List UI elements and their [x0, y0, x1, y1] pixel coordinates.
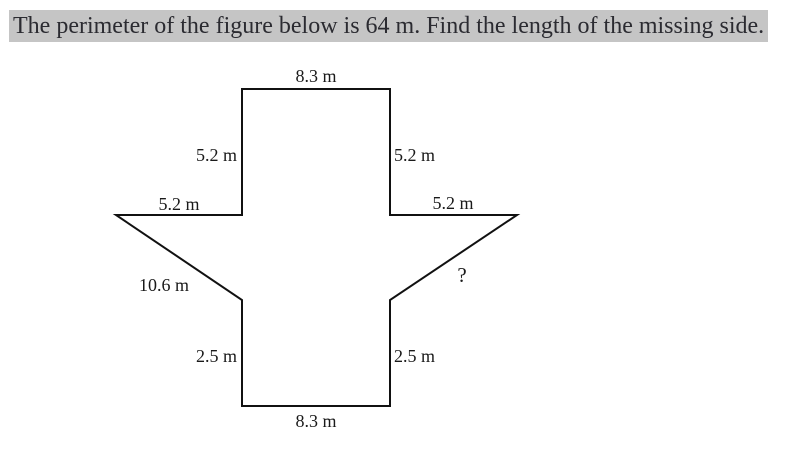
side-label-bottom: 8.3 m [295, 411, 336, 431]
side-label-top: 8.3 m [295, 66, 336, 86]
side-label-lower-right: 2.5 m [394, 346, 435, 366]
figure-outline [116, 89, 517, 406]
side-label-missing: ? [457, 263, 466, 287]
side-label-lower-left: 2.5 m [196, 346, 237, 366]
side-label-upper-right: 5.2 m [394, 145, 435, 165]
side-label-right-horizontal: 5.2 m [432, 193, 473, 213]
worksheet-page: The perimeter of the figure below is 64 … [0, 0, 785, 451]
figure-canvas: 8.3 m 5.2 m 5.2 m 5.2 m 5.2 m 10.6 m ? 2… [0, 0, 785, 451]
side-label-left-diagonal: 10.6 m [139, 275, 189, 295]
geometry-figure: 8.3 m 5.2 m 5.2 m 5.2 m 5.2 m 10.6 m ? 2… [0, 0, 785, 451]
side-label-upper-left: 5.2 m [196, 145, 237, 165]
side-label-left-horizontal: 5.2 m [158, 194, 199, 214]
